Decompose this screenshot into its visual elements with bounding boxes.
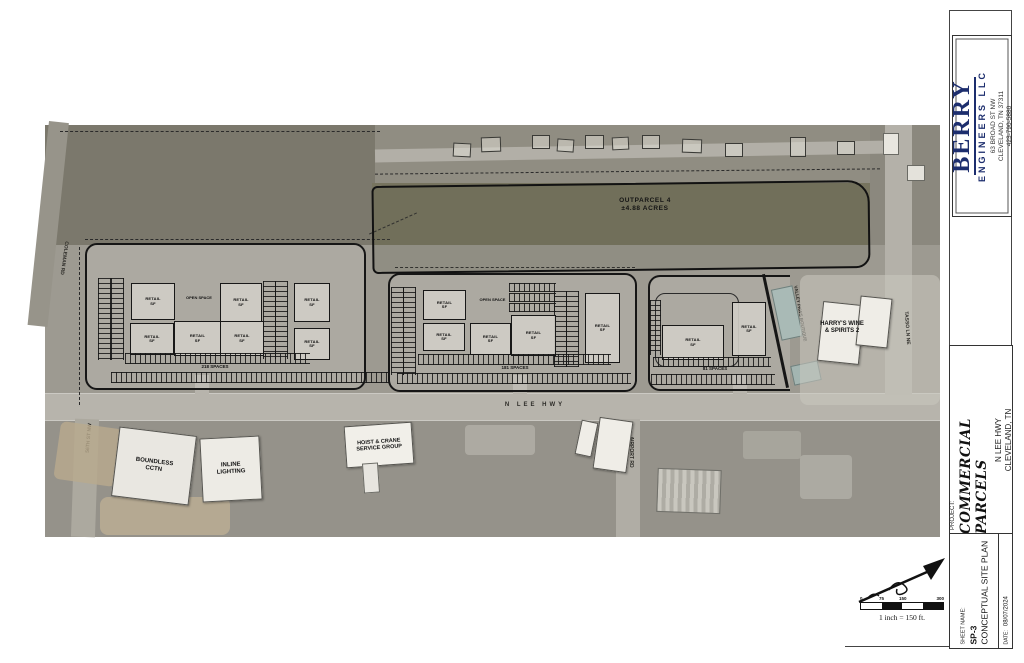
retail-building: RETAILSF [130, 323, 174, 355]
building-size: SF [238, 303, 244, 308]
hoist-crane-building: HOIST & CRANE SERVICE GROUP [344, 422, 415, 469]
parking-row [509, 303, 556, 312]
sheet-title: CONCEPTUAL SITE PLAN [979, 540, 989, 644]
aerial-house [883, 133, 899, 155]
outparcel-4-acreage: ±4.88 ACRES [590, 205, 700, 213]
parking-row [98, 278, 111, 360]
project-label: PROJECT: [950, 501, 956, 530]
open-space-label: OPEN SPACE [470, 297, 515, 302]
project-location-line2: CLEVELAND, TN [1004, 409, 1013, 472]
outparcel-4-boundary [371, 180, 870, 274]
scale-tick: 300 [936, 596, 944, 601]
aerial-house [557, 138, 575, 152]
open-space-label: OPEN SPACE [175, 295, 223, 300]
property-line-dashed [79, 247, 80, 405]
scale-tick: 0 [860, 596, 863, 601]
aerial-house [907, 165, 925, 181]
scale-ticks: 0 75 150 300 [860, 596, 944, 602]
parking-row [125, 353, 310, 364]
scale-tick: 75 [879, 596, 884, 601]
sheet-name-label: SHEET NAME: [960, 607, 966, 644]
retail-building: RETAILSF [511, 315, 556, 356]
building-size: SF [746, 329, 752, 334]
aerial-photo: OUTPARCEL 4 ±4.88 ACRES RETAILSF RETAILS… [45, 125, 940, 537]
retail-building: RETAILSF [294, 283, 330, 322]
parking-row [509, 283, 556, 292]
firm-logo: BERRY [950, 77, 976, 174]
firm-title-rotated: BERRY ENGINEERS LLC 63 BROAD ST NW CLEVE… [953, 36, 1011, 216]
right-parcel-space-count: 81 SPACES [675, 366, 755, 371]
building-size: SF [690, 343, 696, 348]
retail-building: RETAILSF [220, 283, 262, 322]
harrys-label-line2: & SPIRITS 2 [811, 328, 873, 335]
aerial-feature [465, 425, 535, 455]
building-size: SF [488, 339, 494, 344]
harrys-label-line1: HARRY'S WINE [811, 321, 873, 328]
sheet-name-block: SHEET NAME: SP-3 CONCEPTUAL SITE PLAN [949, 533, 1000, 649]
retail-building: RETAILSF [220, 321, 264, 356]
parking-row [650, 300, 661, 355]
firm-address: 63 BROAD ST NW CLEVELAND, TN 37311 423-7… [990, 91, 1014, 161]
aerial-house [453, 143, 472, 158]
date-block: DATE: 08/07/2024 [998, 533, 1013, 649]
retail-building: RETAILSF [131, 283, 175, 320]
n-lee-hwy-label: N LEE HWY [485, 402, 585, 408]
left-parcel-space-count: 218 SPACES [170, 364, 260, 369]
aerial-house [612, 137, 630, 151]
building-size: SF [309, 303, 315, 308]
building-size: SF [309, 344, 315, 349]
parking-row [418, 354, 611, 365]
aerial-house [585, 135, 604, 149]
aerial-house [725, 143, 743, 157]
scale-bar: 0 75 150 300 1 inch = 150 ft. [860, 596, 944, 626]
project-title-block: PROJECT: COMMERCIAL PARCELS N LEE HWY CL… [949, 345, 1013, 535]
aerial-house [837, 141, 855, 155]
outparcel-4-name: OUTPARCEL 4 [590, 197, 700, 205]
building-size: SF [150, 302, 156, 307]
plan-sheet: OUTPARCEL 4 ±4.88 ACRES RETAILSF RETAILS… [0, 0, 1024, 663]
scale-bar-cells [860, 602, 944, 610]
aerial-feature [800, 455, 852, 499]
inline-lighting-building: INLINE LIGHTING [199, 435, 262, 502]
building-size: SF [442, 305, 448, 310]
building-size: SF [239, 339, 245, 344]
firm-address-line1: 63 BROAD ST NW [990, 91, 998, 161]
scale-tick: 150 [899, 596, 907, 601]
aerial-feature [743, 431, 801, 459]
retail-building: RETAILSF [174, 321, 221, 356]
firm-address-line2: CLEVELAND, TN 37311 [998, 91, 1006, 161]
warehouse-building [656, 468, 721, 514]
outparcel-4-label: OUTPARCEL 4 ±4.88 ACRES [590, 197, 700, 213]
retail-building: RETAILSF [423, 290, 466, 320]
building-size: SF [531, 336, 537, 341]
project-title: COMMERCIAL PARCELS [958, 346, 990, 534]
inline-label-line2: LIGHTING [217, 468, 246, 476]
project-title-rotated: PROJECT: COMMERCIAL PARCELS N LEE HWY CL… [950, 346, 1012, 534]
parking-row [651, 374, 775, 385]
property-line-dashed [85, 239, 390, 240]
sheet-number: SP-3 [968, 625, 978, 644]
date-label: DATE: [1003, 630, 1009, 644]
aerial-house [642, 135, 660, 149]
parking-row [111, 372, 389, 383]
retail-building: RETAILSF [585, 293, 620, 363]
hoist-crane-annex [362, 462, 380, 493]
date-rotated: DATE: 08/07/2024 [999, 534, 1012, 648]
parking-row [509, 293, 556, 302]
small-white-building [593, 417, 634, 473]
building-size: SF [600, 328, 606, 333]
parking-row [403, 287, 416, 375]
building-size: SF [195, 339, 201, 344]
parking-row [111, 278, 124, 360]
retail-building: RETAILSF [423, 323, 465, 351]
sheet-top-border [949, 10, 1012, 11]
building-size: SF [149, 339, 155, 344]
harrys-label: HARRY'S WINE & SPIRITS 2 [811, 321, 873, 335]
firm-phone: 423-790-5880 [1006, 91, 1014, 161]
retail-building: RETAILSF [470, 323, 511, 355]
aerial-house [481, 137, 502, 153]
retail-building: RETAILSF [732, 302, 766, 356]
project-location-line1: N LEE HWY [994, 418, 1003, 462]
aerial-house [682, 139, 702, 154]
parking-row [275, 281, 288, 359]
aerial-house [790, 137, 806, 157]
boundless-label-line2: CCTN [145, 465, 162, 474]
scale-caption: 1 inch = 150 ft. [860, 613, 944, 622]
sheet-name-rotated: SHEET NAME: SP-3 CONCEPTUAL SITE PLAN [950, 534, 999, 648]
parking-row [397, 373, 631, 384]
building-size: SF [441, 337, 447, 342]
retail-building: RETAILSF [662, 325, 724, 360]
firm-tagline: ENGINEERS LLC [977, 70, 987, 182]
firm-title-block: BERRY ENGINEERS LLC 63 BROAD ST NW CLEVE… [952, 35, 1012, 217]
property-line-dashed [60, 131, 380, 132]
aerial-field-northwest [45, 125, 375, 247]
boundless-building: BOUNDLESS CCTN [111, 427, 197, 506]
middle-parcel-space-count: 181 SPACES [465, 365, 565, 370]
aerial-house [532, 135, 550, 149]
date-value: 08/07/2024 [1003, 596, 1009, 626]
